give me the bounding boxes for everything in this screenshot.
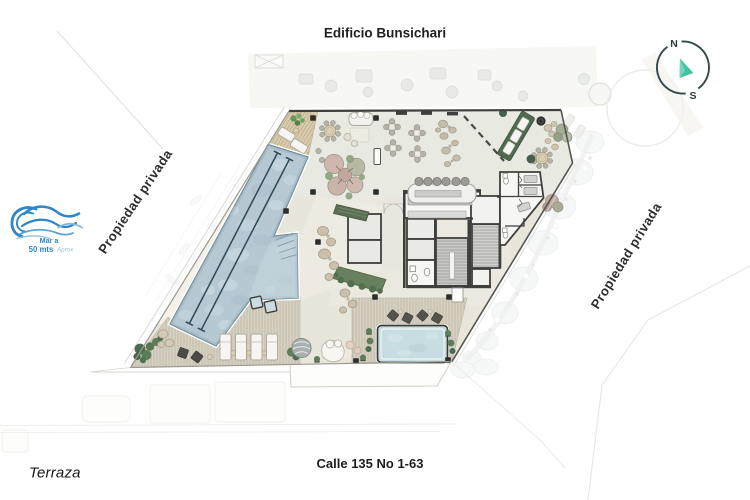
svg-text:Calle 135 No 1-63: Calle 135 No 1-63 [317, 456, 424, 471]
svg-text:Edificio Bunsichari: Edificio Bunsichari [324, 26, 446, 41]
svg-text:Mar a: Mar a [40, 236, 60, 245]
svg-text:Terraza: Terraza [29, 465, 81, 482]
svg-text:S: S [689, 90, 696, 102]
svg-text:50 mts: 50 mts [29, 245, 54, 254]
svg-text:Aprox: Aprox [56, 247, 74, 254]
svg-text:N: N [670, 38, 678, 50]
